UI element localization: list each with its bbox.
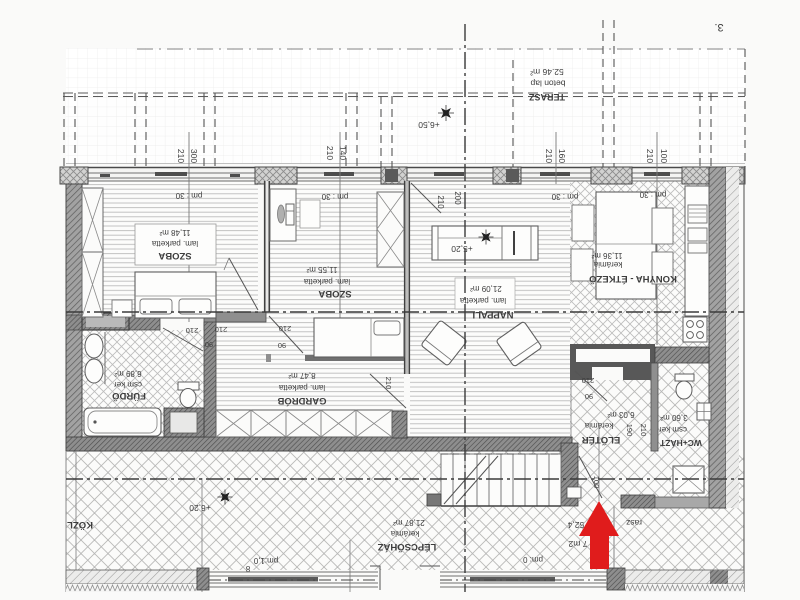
svg-text:210: 210 <box>544 149 554 163</box>
svg-text:WC+HÁZT: WC+HÁZT <box>659 438 702 448</box>
svg-text:210: 210 <box>186 326 199 335</box>
svg-text:+5,20: +5,20 <box>451 244 473 254</box>
svg-text:7 m2: 7 m2 <box>568 539 587 549</box>
svg-text:90: 90 <box>278 341 286 350</box>
svg-text:KONYHA - ÉTKEZŐ: KONYHA - ÉTKEZŐ <box>589 273 677 285</box>
svg-text:TERASZ: TERASZ <box>528 92 565 102</box>
svg-text:6,03 m²: 6,03 m² <box>607 410 634 419</box>
svg-text:210: 210 <box>645 149 655 163</box>
svg-text:LÉPCSŐHÁZ: LÉPCSŐHÁZ <box>378 541 437 553</box>
svg-text:NAPPALI: NAPPALI <box>473 309 514 320</box>
svg-text:csm ker: csm ker <box>659 425 687 434</box>
svg-text:kerámia: kerámia <box>584 421 613 430</box>
svg-text:lam. parketta: lam. parketta <box>459 296 506 305</box>
svg-text:90: 90 <box>205 340 213 349</box>
svg-text:ELŐTÉR: ELŐTÉR <box>582 434 621 446</box>
svg-text:pm : 30: pm : 30 <box>175 191 202 200</box>
svg-text:lam. parketta: lam. parketta <box>151 239 198 248</box>
svg-text:140: 140 <box>338 146 348 160</box>
svg-text:210: 210 <box>176 149 186 163</box>
svg-text:pm : 30: pm : 30 <box>551 192 578 201</box>
svg-text:+6,50: +6,50 <box>418 120 440 130</box>
svg-text:100: 100 <box>592 476 601 489</box>
svg-text:KÖZL: KÖZL <box>67 519 93 530</box>
svg-text:3.: 3. <box>714 21 723 33</box>
svg-text:210: 210 <box>639 424 648 437</box>
svg-text:FÜRDŐ: FÜRDŐ <box>112 390 146 402</box>
svg-text:210: 210 <box>325 146 335 160</box>
svg-text:6,89 m²: 6,89 m² <box>114 369 141 378</box>
svg-text:160: 160 <box>557 149 567 163</box>
svg-text:100: 100 <box>659 149 669 163</box>
svg-text:3,60 m²: 3,60 m² <box>660 413 687 422</box>
svg-text:GARDRÓB: GARDRÓB <box>277 395 326 407</box>
svg-text:210: 210 <box>436 195 445 209</box>
svg-text:pm : 30: pm : 30 <box>639 190 666 199</box>
svg-text:+6,20: +6,20 <box>189 503 211 513</box>
svg-text:210: 210 <box>279 324 292 333</box>
svg-text:190: 190 <box>625 424 634 437</box>
svg-text:210: 210 <box>582 376 595 385</box>
svg-text:11,36 m²: 11,36 m² <box>591 251 622 260</box>
svg-text:SZOBA: SZOBA <box>318 288 351 299</box>
svg-text:pm : 30: pm : 30 <box>321 192 348 201</box>
svg-text:21,87 m²: 21,87 m² <box>393 518 425 527</box>
svg-text:200: 200 <box>453 191 462 205</box>
svg-text:21,09 m²: 21,09 m² <box>470 284 502 293</box>
svg-text:8,47 m²: 8,47 m² <box>288 371 315 380</box>
svg-text:8: 8 <box>245 564 250 573</box>
svg-text:beton lap: beton lap <box>530 79 565 89</box>
svg-text:52.46 m²: 52.46 m² <box>530 67 564 77</box>
svg-text:lam. parketta: lam. parketta <box>278 383 325 392</box>
svg-text:11,48 m²: 11,48 m² <box>159 228 190 237</box>
svg-text:rasz: rasz <box>626 518 642 528</box>
svg-text:SZOBA: SZOBA <box>158 250 191 261</box>
svg-text:pm:1,0: pm:1,0 <box>253 556 278 565</box>
svg-text:90: 90 <box>585 392 593 401</box>
svg-text:lam. parketta: lam. parketta <box>303 277 350 286</box>
svg-text:52,4: 52,4 <box>567 520 584 530</box>
svg-text:kerámia: kerámia <box>593 260 622 269</box>
svg-text:pm: 0: pm: 0 <box>522 555 543 564</box>
svg-text:300: 300 <box>189 149 199 163</box>
svg-text:csm ker: csm ker <box>114 380 142 389</box>
svg-text:210: 210 <box>215 325 228 334</box>
svg-text:210: 210 <box>384 377 393 390</box>
svg-text:11,55 m²: 11,55 m² <box>306 265 337 274</box>
svg-text:kerámia: kerámia <box>390 529 419 538</box>
